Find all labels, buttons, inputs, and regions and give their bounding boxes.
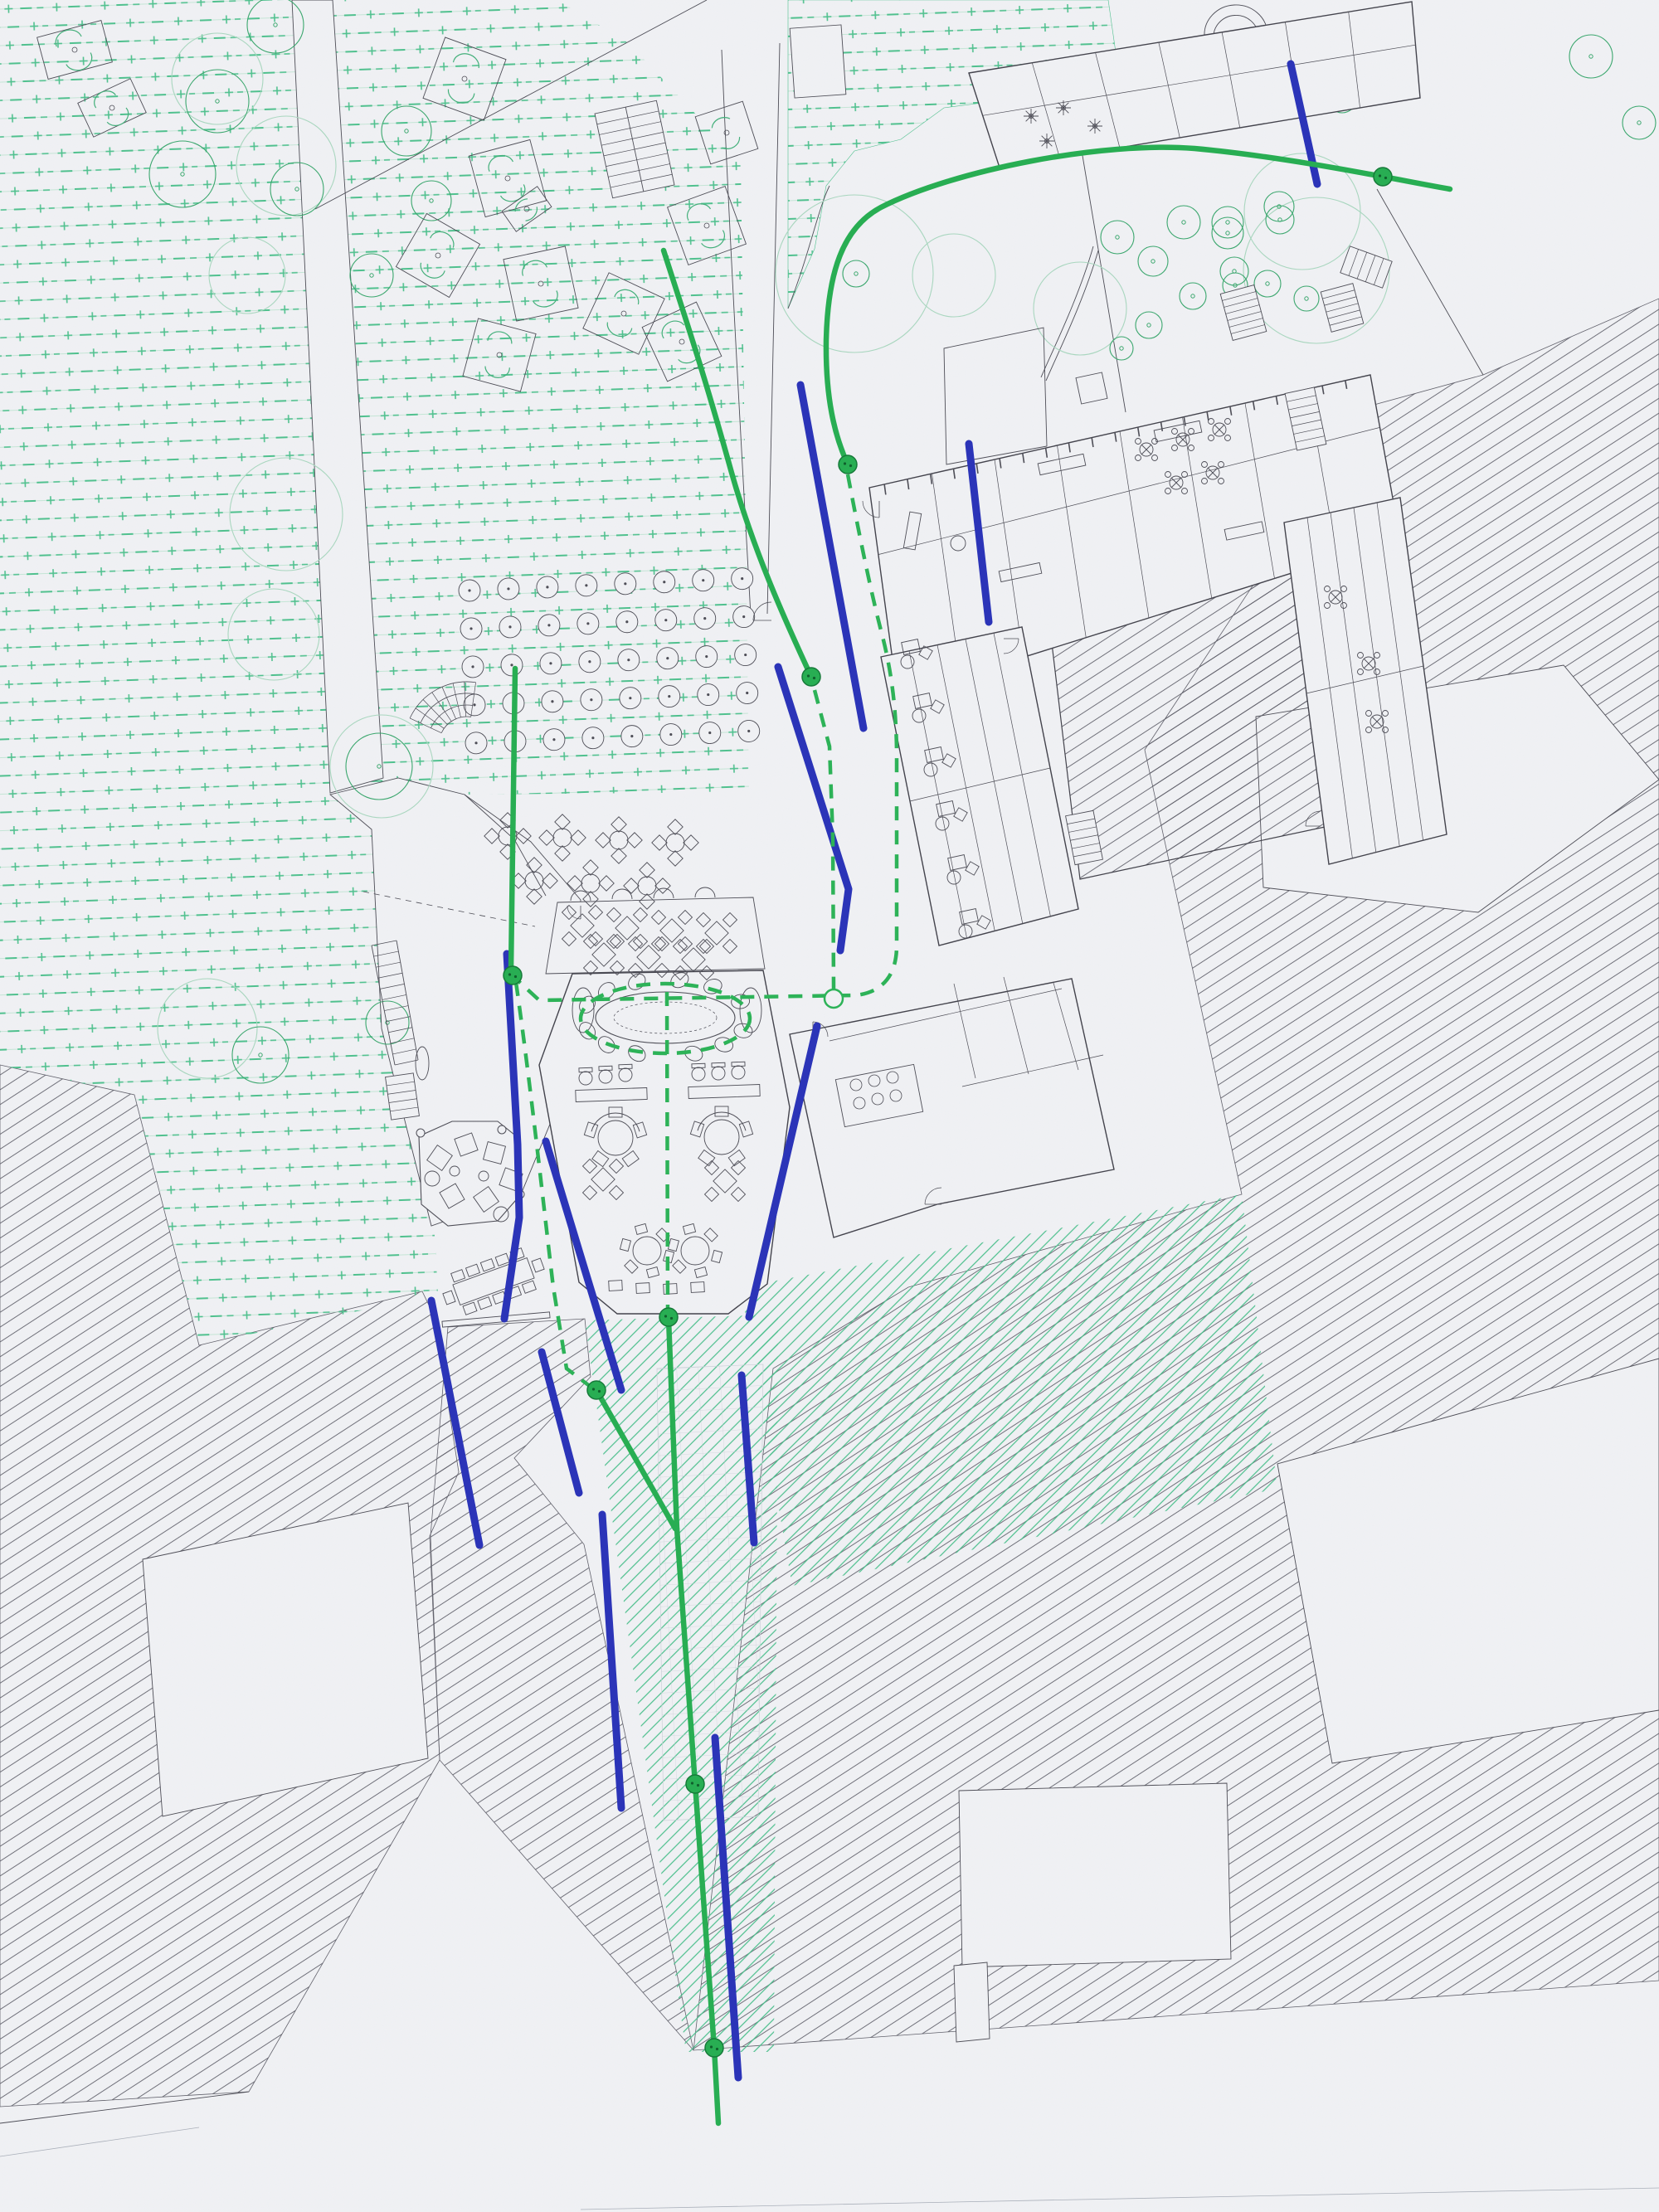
architectural-site-plan	[0, 0, 1659, 2212]
site-plan-canvas	[0, 0, 1659, 2212]
paper-grain-texture	[0, 0, 1659, 2212]
